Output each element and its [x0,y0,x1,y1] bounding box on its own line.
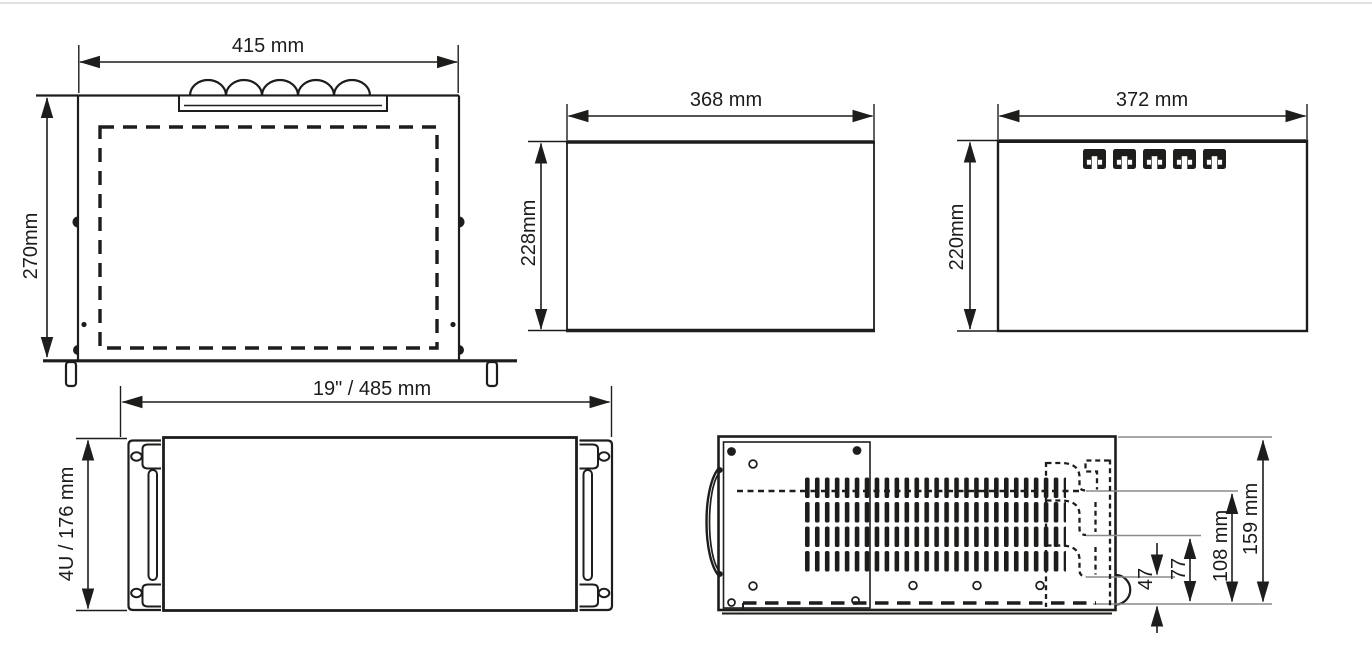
detail-dim-159-label: 159 mm [1241,483,1261,555]
front-view-height-label: 4U / 176 mm [57,467,77,581]
side-b-width-label: 372 mm [1116,90,1188,110]
detail-dim-47-label: 47 [1136,568,1156,590]
side-view-detail-drawing [707,437,1273,634]
detail-dim-108-label: 108 mm [1211,510,1231,582]
side-view-b-drawing [957,104,1308,331]
side-view-a-drawing [528,104,875,331]
side-a-height-label: 228mm [519,200,539,267]
detail-dim-77-label: 77 [1169,558,1189,580]
front-view-width-label: 19" / 485 mm [313,379,431,399]
top-view-width-label: 415 mm [232,36,304,56]
greek-key-ornament-icons [1083,149,1226,169]
top-view-drawing [36,45,517,386]
side-b-height-label: 220mm [947,204,967,271]
top-view-dimensions [47,45,458,357]
front-view-drawing [76,386,612,611]
side-a-width-label: 368 mm [690,90,762,110]
top-view-depth-label: 270mm [21,213,41,280]
technical-drawing-canvas: 415 mm 270mm 368 mm 228mm 372 mm 220mm 1… [0,0,1372,661]
